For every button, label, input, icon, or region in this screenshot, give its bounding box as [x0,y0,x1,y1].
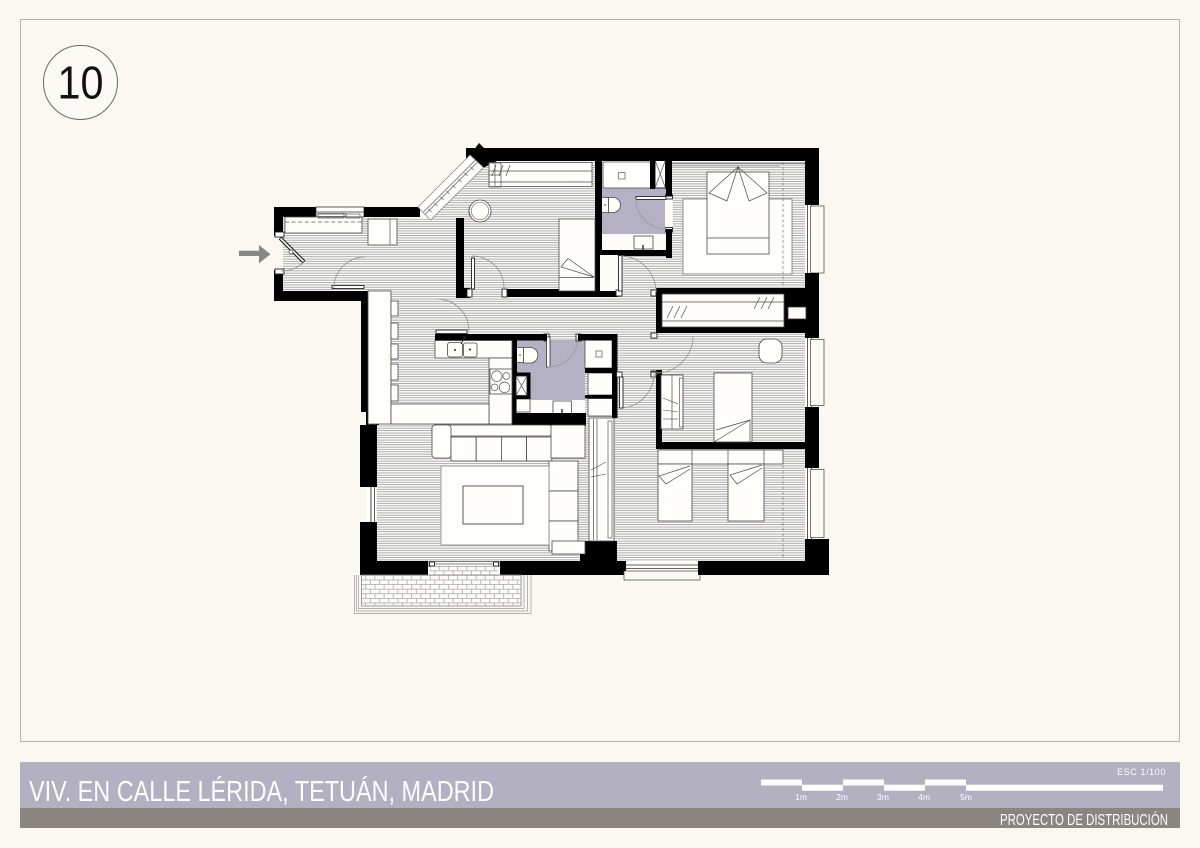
svg-text:10: 10 [58,57,104,109]
svg-text:5m: 5m [960,792,972,802]
svg-text:3m: 3m [877,792,889,802]
svg-text:1m: 1m [795,792,807,802]
svg-text:ESC 1/100: ESC 1/100 [1117,767,1166,777]
svg-text:VIV. EN CALLE LÉRIDA, TETUÁN,: VIV. EN CALLE LÉRIDA, TETUÁN, MADRID [29,775,494,808]
svg-text:PROYECTO DE DISTRIBUCIÓN: PROYECTO DE DISTRIBUCIÓN [1000,810,1168,829]
svg-text:2m: 2m [836,792,848,802]
svg-text:4m: 4m [918,792,930,802]
